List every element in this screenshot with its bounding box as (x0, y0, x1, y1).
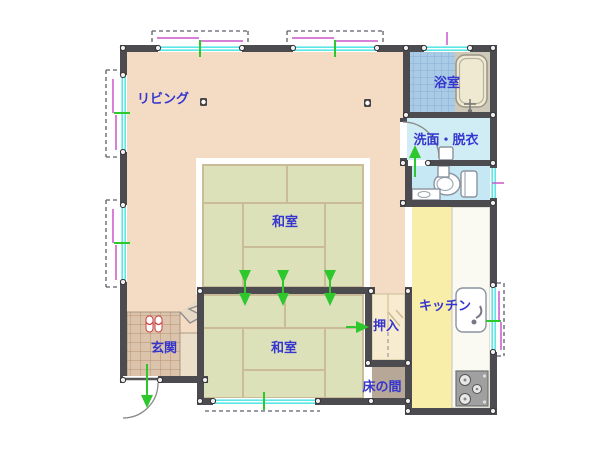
handwash-counter-icon (412, 189, 440, 200)
washbasin-icon (439, 147, 453, 160)
entrance-door-arc (123, 383, 158, 418)
wall-joint (197, 398, 202, 403)
room-label-living: リビング (137, 91, 189, 107)
wall-joint (157, 377, 162, 382)
room-toilet (412, 166, 490, 200)
wall-joint (368, 288, 373, 293)
column-symbol-2 (364, 99, 371, 107)
wall-joint (120, 377, 125, 382)
wall-joint (490, 349, 495, 354)
floor-plan: リビング 浴室 洗面・脱衣 キッチン 和室 和室 押入 床の間 玄関 (0, 0, 600, 450)
wall-joint (120, 279, 125, 284)
floor-plan-canvas: リビング 浴室 洗面・脱衣 キッチン 和室 和室 押入 床の間 玄関 (0, 0, 600, 450)
wall-joint (405, 360, 410, 365)
wall-joint (120, 149, 125, 154)
wall-tatami-left (197, 287, 204, 405)
wall-joint (405, 408, 410, 413)
wall-joint (421, 45, 426, 50)
room-label-bathroom: 浴室 (434, 75, 460, 91)
wall-joint (197, 288, 202, 293)
wall-joint (403, 112, 408, 117)
wall-joint (368, 398, 373, 403)
faucet-base (472, 320, 477, 325)
wall-right (490, 45, 497, 415)
wall-joint (467, 45, 472, 50)
wall-closet-left (365, 287, 372, 367)
wall-joint (425, 160, 430, 165)
wall-joint (239, 45, 244, 50)
corridor-floor (370, 158, 405, 294)
wall-bath-left (403, 45, 410, 118)
room-label-entrance: 玄関 (151, 340, 177, 356)
wall-room-divider (197, 287, 375, 294)
wall-joint (374, 45, 379, 50)
paper-holder-icon (438, 166, 449, 177)
wall-joint (120, 202, 125, 207)
wall-joint (490, 408, 495, 413)
bathtub-icon (456, 55, 487, 113)
wall-closet-right (405, 287, 412, 415)
wall-kitchen-bottom (405, 408, 497, 415)
wall-joint (120, 72, 125, 77)
wall-joint (365, 360, 370, 365)
stove-icon (456, 371, 488, 406)
room-label-tokonoma: 床の間 (362, 379, 401, 395)
room-label-tatami-upper: 和室 (272, 214, 298, 230)
wall-joint (490, 200, 495, 205)
column-symbol-1 (200, 98, 207, 106)
wall-joint (490, 45, 495, 50)
wall-joint (120, 45, 125, 50)
window-bathroom (424, 32, 470, 50)
wall-joint (155, 45, 160, 50)
wall-bath-wash (403, 112, 490, 118)
wall-tatami-bottom-b (315, 398, 412, 405)
wall-joint (315, 398, 320, 403)
wall-joint (403, 45, 408, 50)
wall-joint (400, 200, 405, 205)
wall-joint (290, 45, 295, 50)
wall-joint (405, 398, 410, 403)
wall-joint (405, 288, 410, 293)
room-label-washroom: 洗面・脱衣 (413, 132, 478, 148)
wall-joint (202, 377, 207, 382)
wall-joint (210, 398, 215, 403)
room-label-closet: 押入 (373, 318, 399, 334)
wall-joint (400, 160, 405, 165)
wall-toilet-bottom (400, 200, 497, 207)
room-label-kitchen: キッチン (419, 299, 471, 314)
wall-joint (490, 112, 495, 117)
wall-joint (490, 160, 495, 165)
wall-joint (490, 282, 495, 287)
room-label-tatami-lower: 和室 (271, 340, 297, 356)
